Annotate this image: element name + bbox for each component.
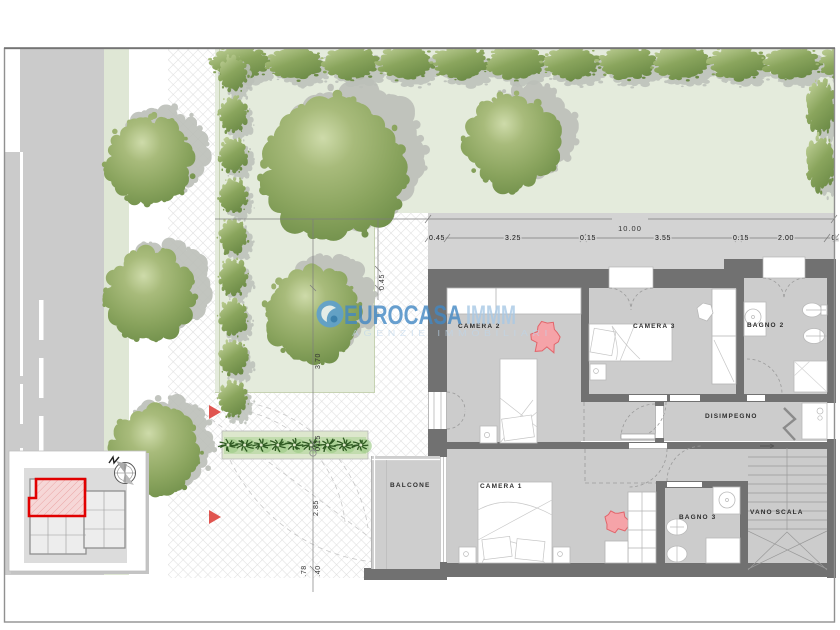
svg-text:0.15: 0.15	[580, 235, 596, 242]
svg-text:EUROCASA: EUROCASA	[344, 300, 462, 330]
svg-text:10.00: 10.00	[618, 224, 642, 233]
svg-text:0.15: 0.15	[315, 435, 322, 451]
svg-text:DISIMPEGNO: DISIMPEGNO	[705, 413, 758, 420]
svg-text:2.00: 2.00	[778, 235, 794, 242]
svg-text:0.15: 0.15	[733, 235, 749, 242]
svg-text:BAGNO 2: BAGNO 2	[747, 322, 784, 329]
svg-text:BALCONE: BALCONE	[390, 482, 431, 489]
svg-text:3.55: 3.55	[655, 235, 671, 242]
svg-text:IMMM: IMMM	[466, 300, 516, 330]
svg-text:CAMERA 3: CAMERA 3	[633, 323, 676, 330]
svg-text:AGENZIE IMMOBILIARI: AGENZIE IMMOBILIARI	[352, 329, 552, 338]
svg-text:2.85: 2.85	[313, 500, 320, 516]
svg-text:3.70: 3.70	[315, 353, 322, 369]
svg-text:VANO SCALA: VANO SCALA	[750, 509, 804, 516]
svg-text:.78: .78	[301, 565, 308, 577]
svg-text:BAGNO 3: BAGNO 3	[679, 514, 716, 521]
svg-text:.40: .40	[315, 565, 322, 577]
svg-text:0.45: 0.45	[379, 274, 386, 290]
svg-text:CAMERA 1: CAMERA 1	[480, 483, 523, 490]
svg-text:0.45: 0.45	[429, 235, 445, 242]
svg-text:3.25: 3.25	[505, 235, 521, 242]
